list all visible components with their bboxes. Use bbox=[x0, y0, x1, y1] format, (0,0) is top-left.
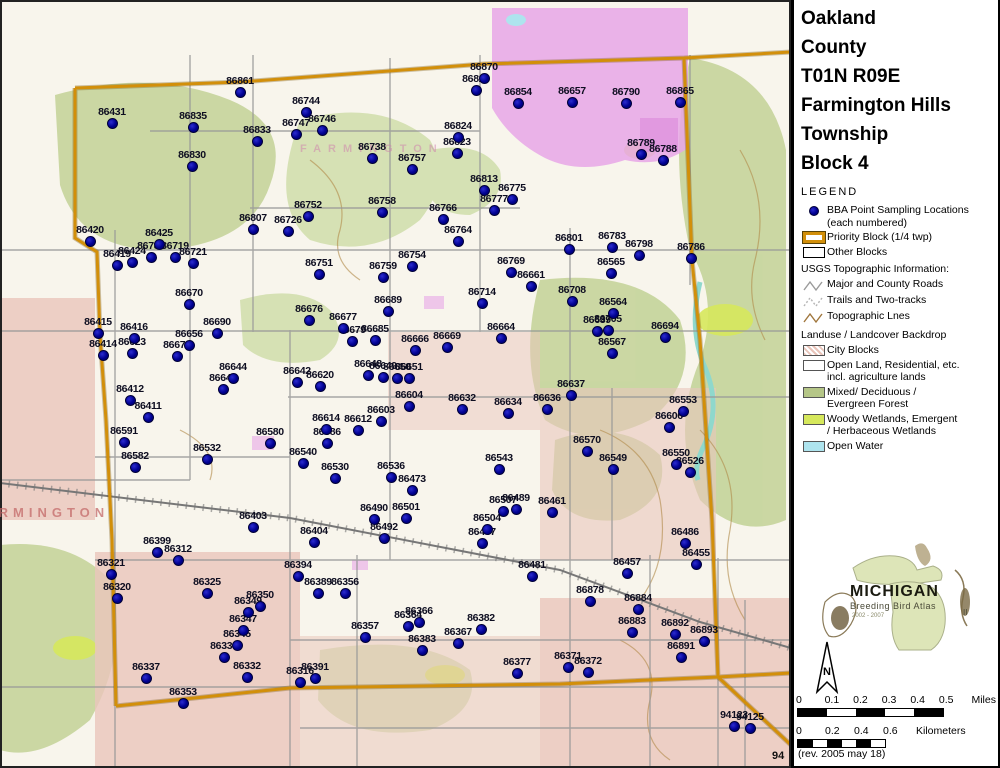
sampling-point-86861[interactable] bbox=[235, 87, 246, 98]
sampling-point-label: 86826 bbox=[444, 73, 508, 85]
sampling-point-86501[interactable] bbox=[401, 513, 412, 524]
sampling-point-86404[interactable] bbox=[309, 537, 320, 548]
sampling-point-label: 86564 bbox=[581, 296, 645, 308]
usgs-heading: USGS Topographic Information: bbox=[801, 263, 997, 275]
sampling-point-86789[interactable] bbox=[636, 149, 647, 160]
logo-years: 2002 - 2007 bbox=[852, 613, 884, 619]
sampling-point-86666[interactable] bbox=[410, 345, 421, 356]
legend-label: BBA Point Sampling Locations bbox=[827, 204, 969, 217]
sampling-point-86892[interactable] bbox=[670, 629, 681, 640]
sampling-point-86883[interactable] bbox=[627, 627, 638, 638]
sampling-point-label: 86403 bbox=[221, 510, 285, 522]
sampling-point-label: 86414 bbox=[71, 338, 135, 350]
sampling-point-label: 86504 bbox=[455, 512, 519, 524]
sampling-point-label: 86404 bbox=[282, 525, 346, 537]
sampling-point-86490[interactable] bbox=[369, 514, 380, 525]
sampling-point-86489[interactable] bbox=[511, 504, 522, 515]
sampling-point-86694[interactable] bbox=[660, 332, 671, 343]
sampling-point-86337[interactable] bbox=[141, 673, 152, 684]
sampling-point-86775[interactable] bbox=[507, 194, 518, 205]
sampling-point-94123[interactable] bbox=[729, 721, 740, 732]
landuse-item: Woody Wetlands, Emergent/ Herbaceous Wet… bbox=[801, 413, 997, 438]
sampling-point-86543[interactable] bbox=[494, 464, 505, 475]
scale-segment bbox=[871, 740, 886, 747]
scale-tick: 0 bbox=[796, 694, 825, 706]
landuse-swatch bbox=[803, 414, 825, 425]
sampling-point-86372[interactable] bbox=[583, 667, 594, 678]
sampling-point-label: 86751 bbox=[287, 257, 351, 269]
sampling-point-label: 86759 bbox=[351, 260, 415, 272]
sampling-point-86492[interactable] bbox=[379, 533, 390, 544]
sampling-point-label: 86757 bbox=[380, 152, 444, 164]
landuse-label: Mixed/ Deciduous /Evergreen Forest bbox=[827, 386, 916, 411]
sampling-point-86399[interactable] bbox=[152, 547, 163, 558]
sampling-point-86721[interactable] bbox=[188, 258, 199, 269]
sampling-point-label: 86677 bbox=[311, 311, 375, 323]
sampling-point-label: 86670 bbox=[157, 287, 221, 299]
sampling-point-86349[interactable] bbox=[243, 607, 254, 618]
sampling-point-86744[interactable] bbox=[301, 107, 312, 118]
sampling-point-label: 86835 bbox=[161, 110, 225, 122]
sampling-point-label: 86567 bbox=[580, 336, 644, 348]
sampling-point-86623[interactable] bbox=[127, 348, 138, 359]
sampling-point-86321[interactable] bbox=[106, 569, 117, 580]
sampling-point-label: 86391 bbox=[283, 661, 347, 673]
title-line-block: Block 4 bbox=[801, 149, 997, 178]
landuse-item: Open Land, Residential, etc.incl. agricu… bbox=[801, 359, 997, 384]
corner-partial-label: 94 bbox=[772, 750, 784, 762]
scale-tick: 0 bbox=[796, 725, 825, 737]
sampling-point-86752[interactable] bbox=[303, 211, 314, 222]
north-label: N bbox=[823, 666, 831, 678]
sampling-point-label: 86334 bbox=[192, 640, 256, 652]
sampling-point-86481[interactable] bbox=[527, 571, 538, 582]
sampling-point-86766[interactable] bbox=[438, 214, 449, 225]
sampling-point-86751[interactable] bbox=[314, 269, 325, 280]
sampling-point-86637[interactable] bbox=[566, 390, 577, 401]
sampling-point-label: 86758 bbox=[350, 195, 414, 207]
legend-item-bba-points: BBA Point Sampling Locations (each numbe… bbox=[801, 204, 997, 229]
legend-label: Other Blocks bbox=[827, 246, 887, 259]
sampling-point-86878[interactable] bbox=[585, 596, 596, 607]
sampling-point-label: 86420 bbox=[58, 224, 122, 236]
sampling-point-86431[interactable] bbox=[107, 118, 118, 129]
sampling-point-86567[interactable] bbox=[607, 348, 618, 359]
sampling-point-label: 86689 bbox=[356, 294, 420, 306]
sampling-point-86582[interactable] bbox=[130, 462, 141, 473]
km-scale-bar bbox=[797, 739, 886, 748]
sampling-point-label: 86353 bbox=[151, 686, 215, 698]
sampling-point-label: 86349 bbox=[216, 595, 280, 607]
map-title: Oakland County T01N R09E Farmington Hill… bbox=[801, 4, 997, 178]
sampling-point-86461[interactable] bbox=[547, 507, 558, 518]
sampling-point-86783[interactable] bbox=[607, 242, 618, 253]
sampling-point-86870[interactable] bbox=[479, 73, 490, 84]
legend-label: Priority Block (1/4 twp) bbox=[827, 231, 932, 244]
sampling-point-label: 86553 bbox=[651, 394, 715, 406]
scale-tick: 0.2 bbox=[853, 694, 882, 706]
miles-tick-labels: 00.10.20.30.40.5Miles bbox=[796, 692, 996, 706]
sampling-point-label: 86830 bbox=[160, 149, 224, 161]
sampling-point-86614[interactable] bbox=[321, 424, 332, 435]
sampling-point-86325[interactable] bbox=[202, 588, 213, 599]
sampling-point-label: 86337 bbox=[114, 661, 178, 673]
sampling-point-86651[interactable] bbox=[404, 373, 415, 384]
sampling-point-label: 86543 bbox=[467, 452, 531, 464]
sampling-point-86647[interactable] bbox=[218, 384, 229, 395]
scale-segment bbox=[827, 740, 842, 747]
sampling-point-86420[interactable] bbox=[85, 236, 96, 247]
scale-segment bbox=[798, 740, 813, 747]
sampling-point-86425[interactable] bbox=[154, 239, 165, 250]
sampling-point-86670[interactable] bbox=[184, 299, 195, 310]
sampling-point-label: 86884 bbox=[606, 592, 670, 604]
sampling-point-86507[interactable] bbox=[498, 506, 509, 517]
bba-point-icon bbox=[809, 206, 819, 216]
sampling-point-86389[interactable] bbox=[313, 588, 324, 599]
sampling-point-86824[interactable] bbox=[453, 132, 464, 143]
sampling-point-86758[interactable] bbox=[377, 207, 388, 218]
sampling-point-86790[interactable] bbox=[621, 98, 632, 109]
major-roads-icon bbox=[803, 279, 825, 292]
sampling-point-86549[interactable] bbox=[608, 464, 619, 475]
sampling-point-86553[interactable] bbox=[678, 406, 689, 417]
sampling-point-86639[interactable] bbox=[592, 326, 603, 337]
sampling-point-86661[interactable] bbox=[526, 281, 537, 292]
sampling-point-86769[interactable] bbox=[506, 267, 517, 278]
landuse-swatch bbox=[803, 387, 825, 398]
sampling-point-86759[interactable] bbox=[378, 272, 389, 283]
sampling-point-label: 86708 bbox=[540, 284, 604, 296]
sampling-point-86644[interactable] bbox=[228, 373, 239, 384]
scale-segment bbox=[856, 709, 885, 716]
sampling-point-86603[interactable] bbox=[376, 416, 387, 427]
scale-segment bbox=[914, 709, 943, 716]
sampling-point-86679[interactable] bbox=[347, 336, 358, 347]
sampling-point-86634[interactable] bbox=[503, 408, 514, 419]
sampling-point-label: 86752 bbox=[276, 199, 340, 211]
legend-item-other-blocks: Other Blocks bbox=[801, 246, 997, 259]
sampling-point-86345[interactable] bbox=[232, 640, 243, 651]
sampling-point-86530[interactable] bbox=[330, 473, 341, 484]
topographic-map[interactable]: FARMINGTON FARMINGTON 94 864318686186835… bbox=[0, 0, 791, 768]
sampling-point-86455[interactable] bbox=[691, 559, 702, 570]
sampling-point-label: 86870 bbox=[452, 61, 516, 73]
north-arrow: N bbox=[810, 640, 846, 698]
sampling-point-86636[interactable] bbox=[542, 404, 553, 415]
sampling-point-86754[interactable] bbox=[407, 261, 418, 272]
sampling-point-86367[interactable] bbox=[453, 638, 464, 649]
scale-segment bbox=[842, 740, 857, 747]
sampling-point-86747[interactable] bbox=[291, 129, 302, 140]
other-block-icon bbox=[803, 247, 825, 258]
sampling-point-86604[interactable] bbox=[404, 401, 415, 412]
sampling-point-label: 86582 bbox=[103, 450, 167, 462]
sampling-point-86826[interactable] bbox=[471, 85, 482, 96]
title-line-county2: County bbox=[801, 33, 997, 62]
sampling-point-label: 86412 bbox=[98, 383, 162, 395]
sampling-point-86807[interactable] bbox=[248, 224, 259, 235]
sampling-point-86833[interactable] bbox=[252, 136, 263, 147]
sampling-point-86798[interactable] bbox=[634, 250, 645, 261]
trails-icon bbox=[803, 295, 825, 308]
sampling-point-86391[interactable] bbox=[310, 673, 321, 684]
revision-note: (rev. 2005 may 18) bbox=[798, 748, 885, 760]
sampling-point-86366[interactable] bbox=[414, 617, 425, 628]
sampling-point-86320[interactable] bbox=[112, 593, 123, 604]
sampling-point-label: 86570 bbox=[555, 434, 619, 446]
sampling-point-label: 86455 bbox=[664, 547, 728, 559]
sampling-point-label: 86526 bbox=[658, 455, 722, 467]
sampling-point-86419[interactable] bbox=[112, 260, 123, 271]
sampling-point-label: 86824 bbox=[426, 120, 490, 132]
sampling-point-86689[interactable] bbox=[383, 306, 394, 317]
sampling-point-label: 86893 bbox=[672, 624, 736, 636]
sampling-point-86757[interactable] bbox=[407, 164, 418, 175]
sampling-point-86813[interactable] bbox=[479, 185, 490, 196]
scale-tick: 0.2 bbox=[825, 725, 854, 737]
sampling-point-label: 86591 bbox=[92, 425, 156, 437]
sampling-point-label: 86694 bbox=[633, 320, 697, 332]
sampling-point-86657[interactable] bbox=[567, 97, 578, 108]
title-line-county1: Oakland bbox=[801, 4, 997, 33]
sampling-point-86648[interactable] bbox=[363, 370, 374, 381]
sampling-point-86777[interactable] bbox=[489, 205, 500, 216]
sampling-point-86835[interactable] bbox=[188, 122, 199, 133]
michigan-bba-logo: MICHIGAN Breeding Bird Atlas 2002 - 2007… bbox=[795, 540, 1000, 655]
topo-lines-icon bbox=[803, 311, 825, 324]
sampling-point-86356[interactable] bbox=[340, 588, 351, 599]
sampling-point-label: 86744 bbox=[274, 95, 338, 107]
sampling-point-86714[interactable] bbox=[477, 298, 488, 309]
sampling-point-86424[interactable] bbox=[127, 257, 138, 268]
legend-label: Trails and Two-tracks bbox=[827, 294, 926, 307]
landuse-swatch bbox=[803, 360, 825, 371]
scale-unit: Miles bbox=[971, 694, 996, 706]
sampling-point-86353[interactable] bbox=[178, 698, 189, 709]
sampling-point-86788[interactable] bbox=[658, 155, 669, 166]
sampling-point-label: 86769 bbox=[479, 255, 543, 267]
sampling-point-86334[interactable] bbox=[219, 652, 230, 663]
sampling-point-86785[interactable] bbox=[146, 252, 157, 263]
legend-item-topo-lines: Topographic Lnes bbox=[801, 310, 997, 324]
scale-tick: 0.4 bbox=[910, 694, 939, 706]
sampling-point-86473[interactable] bbox=[407, 485, 418, 496]
legend-label: (each numbered) bbox=[827, 217, 969, 230]
sampling-point-86347[interactable] bbox=[238, 625, 249, 636]
scale-segment bbox=[798, 709, 827, 716]
sampling-point-label: 86457 bbox=[595, 556, 659, 568]
sampling-point-label: 86321 bbox=[79, 557, 143, 569]
sampling-point-86565[interactable] bbox=[606, 268, 617, 279]
sampling-point-label: 86786 bbox=[659, 241, 723, 253]
scale-tick: 0.4 bbox=[854, 725, 883, 737]
sampling-point-label: 86764 bbox=[426, 224, 490, 236]
sampling-point-86316[interactable] bbox=[295, 677, 306, 688]
sampling-point-86865[interactable] bbox=[675, 97, 686, 108]
landuse-label: City Blocks bbox=[827, 344, 879, 357]
landuse-item: Mixed/ Deciduous /Evergreen Forest bbox=[801, 386, 997, 411]
sampling-point-86371[interactable] bbox=[563, 662, 574, 673]
landuse-swatch bbox=[803, 345, 825, 356]
sampling-point-86854[interactable] bbox=[513, 98, 524, 109]
sampling-point-86416[interactable] bbox=[129, 333, 140, 344]
sampling-point-label: 86461 bbox=[520, 495, 584, 507]
sampling-point-86383[interactable] bbox=[417, 645, 428, 656]
sampling-point-86726[interactable] bbox=[283, 226, 294, 237]
sampling-point-label: 86481 bbox=[500, 559, 564, 571]
sampling-point-86893[interactable] bbox=[699, 636, 710, 647]
legend-label: Major and County Roads bbox=[827, 278, 943, 291]
landuse-item: City Blocks bbox=[801, 344, 997, 357]
sampling-point-86830[interactable] bbox=[187, 161, 198, 172]
sampling-point-86664[interactable] bbox=[496, 333, 507, 344]
sampling-point-86364[interactable] bbox=[403, 621, 414, 632]
sampling-point-86650[interactable] bbox=[392, 373, 403, 384]
scale-segment bbox=[885, 709, 914, 716]
sampling-point-86632[interactable] bbox=[457, 404, 468, 415]
sampling-point-86801[interactable] bbox=[564, 244, 575, 255]
sampling-point-label: 86669 bbox=[415, 330, 479, 342]
sampling-point-label: 86754 bbox=[380, 249, 444, 261]
scale-segment bbox=[813, 740, 828, 747]
sampling-point-86642[interactable] bbox=[292, 377, 303, 388]
sampling-point-label: 86394 bbox=[266, 559, 330, 571]
sampling-point-86705[interactable] bbox=[603, 325, 614, 336]
sampling-point-86467[interactable] bbox=[477, 538, 488, 549]
sampling-point-label: 86861 bbox=[208, 75, 272, 87]
town-name-label: FARMINGTON bbox=[0, 505, 109, 520]
logo-title: MICHIGAN bbox=[850, 583, 939, 601]
sampling-point-label: 86425 bbox=[127, 227, 191, 239]
sampling-point-86823[interactable] bbox=[452, 148, 463, 159]
km-tick-labels: 00.20.40.6Kilometers bbox=[796, 723, 996, 737]
sampling-point-86312[interactable] bbox=[173, 555, 184, 566]
sampling-point-label: 86530 bbox=[303, 461, 367, 473]
sampling-point-86764[interactable] bbox=[453, 236, 464, 247]
landuse-heading: Landuse / Landcover Backdrop bbox=[801, 329, 997, 341]
sampling-point-86550[interactable] bbox=[671, 459, 682, 470]
sampling-point-label: 86565 bbox=[579, 256, 643, 268]
sampling-point-label: 86606 bbox=[637, 410, 701, 422]
sampling-point-86403[interactable] bbox=[248, 522, 259, 533]
sampling-point-label: 86325 bbox=[175, 576, 239, 588]
sampling-point-86332[interactable] bbox=[242, 672, 253, 683]
sampling-point-86891[interactable] bbox=[676, 652, 687, 663]
sampling-point-86738[interactable] bbox=[367, 153, 378, 164]
sampling-point-label: 86320 bbox=[85, 581, 149, 593]
scale-tick: 0.1 bbox=[825, 694, 854, 706]
legend-heading: LEGEND bbox=[801, 186, 997, 198]
landuse-label: Woody Wetlands, Emergent/ Herbaceous Wet… bbox=[827, 413, 957, 438]
sampling-point-86536[interactable] bbox=[386, 472, 397, 483]
sampling-point-86414[interactable] bbox=[98, 350, 109, 361]
sampling-point-86350[interactable] bbox=[255, 601, 266, 612]
sampling-point-86677[interactable] bbox=[338, 323, 349, 334]
sampling-point-label: 86580 bbox=[238, 426, 302, 438]
scale-segment bbox=[827, 709, 856, 716]
sampling-point-86690[interactable] bbox=[212, 328, 223, 339]
sampling-point-label: 86637 bbox=[539, 378, 603, 390]
sampling-point-94125[interactable] bbox=[745, 723, 756, 734]
sampling-point-86669[interactable] bbox=[442, 342, 453, 353]
sampling-point-label: 86382 bbox=[449, 612, 513, 624]
title-line-town1: Farmington Hills bbox=[801, 91, 997, 120]
sampling-point-86719[interactable] bbox=[170, 252, 181, 263]
sampling-point-label: 86486 bbox=[653, 526, 717, 538]
sampling-point-label: 86634 bbox=[476, 396, 540, 408]
logo-numeral: II bbox=[963, 608, 967, 617]
sampling-point-86540[interactable] bbox=[298, 458, 309, 469]
sampling-point-86504[interactable] bbox=[482, 524, 493, 535]
sampling-point-86786[interactable] bbox=[686, 253, 697, 264]
sampling-point-86532[interactable] bbox=[202, 454, 213, 465]
sampling-point-86671[interactable] bbox=[172, 351, 183, 362]
landuse-item: Open Water bbox=[801, 440, 997, 453]
sampling-point-86411[interactable] bbox=[143, 412, 154, 423]
sampling-point-86570[interactable] bbox=[582, 446, 593, 457]
sampling-point-86656[interactable] bbox=[184, 340, 195, 351]
scale-bars: 00.10.20.30.40.5Miles 00.20.40.6Kilomete… bbox=[796, 692, 996, 754]
sampling-point-label: 86651 bbox=[377, 361, 441, 373]
legend-item-major-roads: Major and County Roads bbox=[801, 278, 997, 292]
sampling-point-86884[interactable] bbox=[633, 604, 644, 615]
sampling-point-86612[interactable] bbox=[353, 425, 364, 436]
sampling-point-86685[interactable] bbox=[370, 335, 381, 346]
sampling-point-86382[interactable] bbox=[476, 624, 487, 635]
sampling-point-86377[interactable] bbox=[512, 668, 523, 679]
sampling-point-86708[interactable] bbox=[567, 296, 578, 307]
sampling-point-86620[interactable] bbox=[315, 381, 326, 392]
scale-tick: 0.3 bbox=[882, 694, 911, 706]
sampling-point-label: 86532 bbox=[175, 442, 239, 454]
sampling-point-86649[interactable] bbox=[378, 372, 389, 383]
sampling-point-86676[interactable] bbox=[304, 315, 315, 326]
sampling-point-label: 86865 bbox=[648, 85, 712, 97]
sampling-point-label: 86690 bbox=[185, 316, 249, 328]
landuse-label: Open Water bbox=[827, 440, 883, 453]
sampling-point-86606[interactable] bbox=[664, 422, 675, 433]
sampling-point-86357[interactable] bbox=[360, 632, 371, 643]
sampling-point-label: 86536 bbox=[359, 460, 423, 472]
atlas-map-plate: FARMINGTON FARMINGTON 94 864318686186835… bbox=[0, 0, 1000, 768]
scale-tick: 0.6 bbox=[883, 725, 912, 737]
sampling-point-label: 86647 bbox=[191, 372, 255, 384]
miles-scale-bar bbox=[797, 708, 944, 717]
scale-tick: 0.5 bbox=[939, 694, 968, 706]
sampling-point-86394[interactable] bbox=[293, 571, 304, 582]
legend-item-trails: Trails and Two-tracks bbox=[801, 294, 997, 308]
sampling-point-label: 86714 bbox=[450, 286, 514, 298]
sampling-point-86591[interactable] bbox=[119, 437, 130, 448]
sampling-point-86457[interactable] bbox=[622, 568, 633, 579]
sampling-point-86486[interactable] bbox=[680, 538, 691, 549]
sampling-point-label: 94125 bbox=[718, 711, 782, 723]
title-line-township-range: T01N R09E bbox=[801, 62, 997, 91]
priority-block-icon bbox=[803, 232, 825, 243]
sampling-point-label: 86501 bbox=[374, 501, 438, 513]
sampling-point-86564[interactable] bbox=[608, 308, 619, 319]
sampling-point-86586[interactable] bbox=[322, 438, 333, 449]
sampling-point-86526[interactable] bbox=[685, 467, 696, 478]
scale-segment bbox=[856, 740, 871, 747]
sampling-point-86746[interactable] bbox=[317, 125, 328, 136]
legend-item-priority-block: Priority Block (1/4 twp) bbox=[801, 231, 997, 244]
sampling-point-86580[interactable] bbox=[265, 438, 276, 449]
scale-unit: Kilometers bbox=[916, 725, 966, 737]
sampling-point-86412[interactable] bbox=[125, 395, 136, 406]
sampling-point-86415[interactable] bbox=[93, 328, 104, 339]
